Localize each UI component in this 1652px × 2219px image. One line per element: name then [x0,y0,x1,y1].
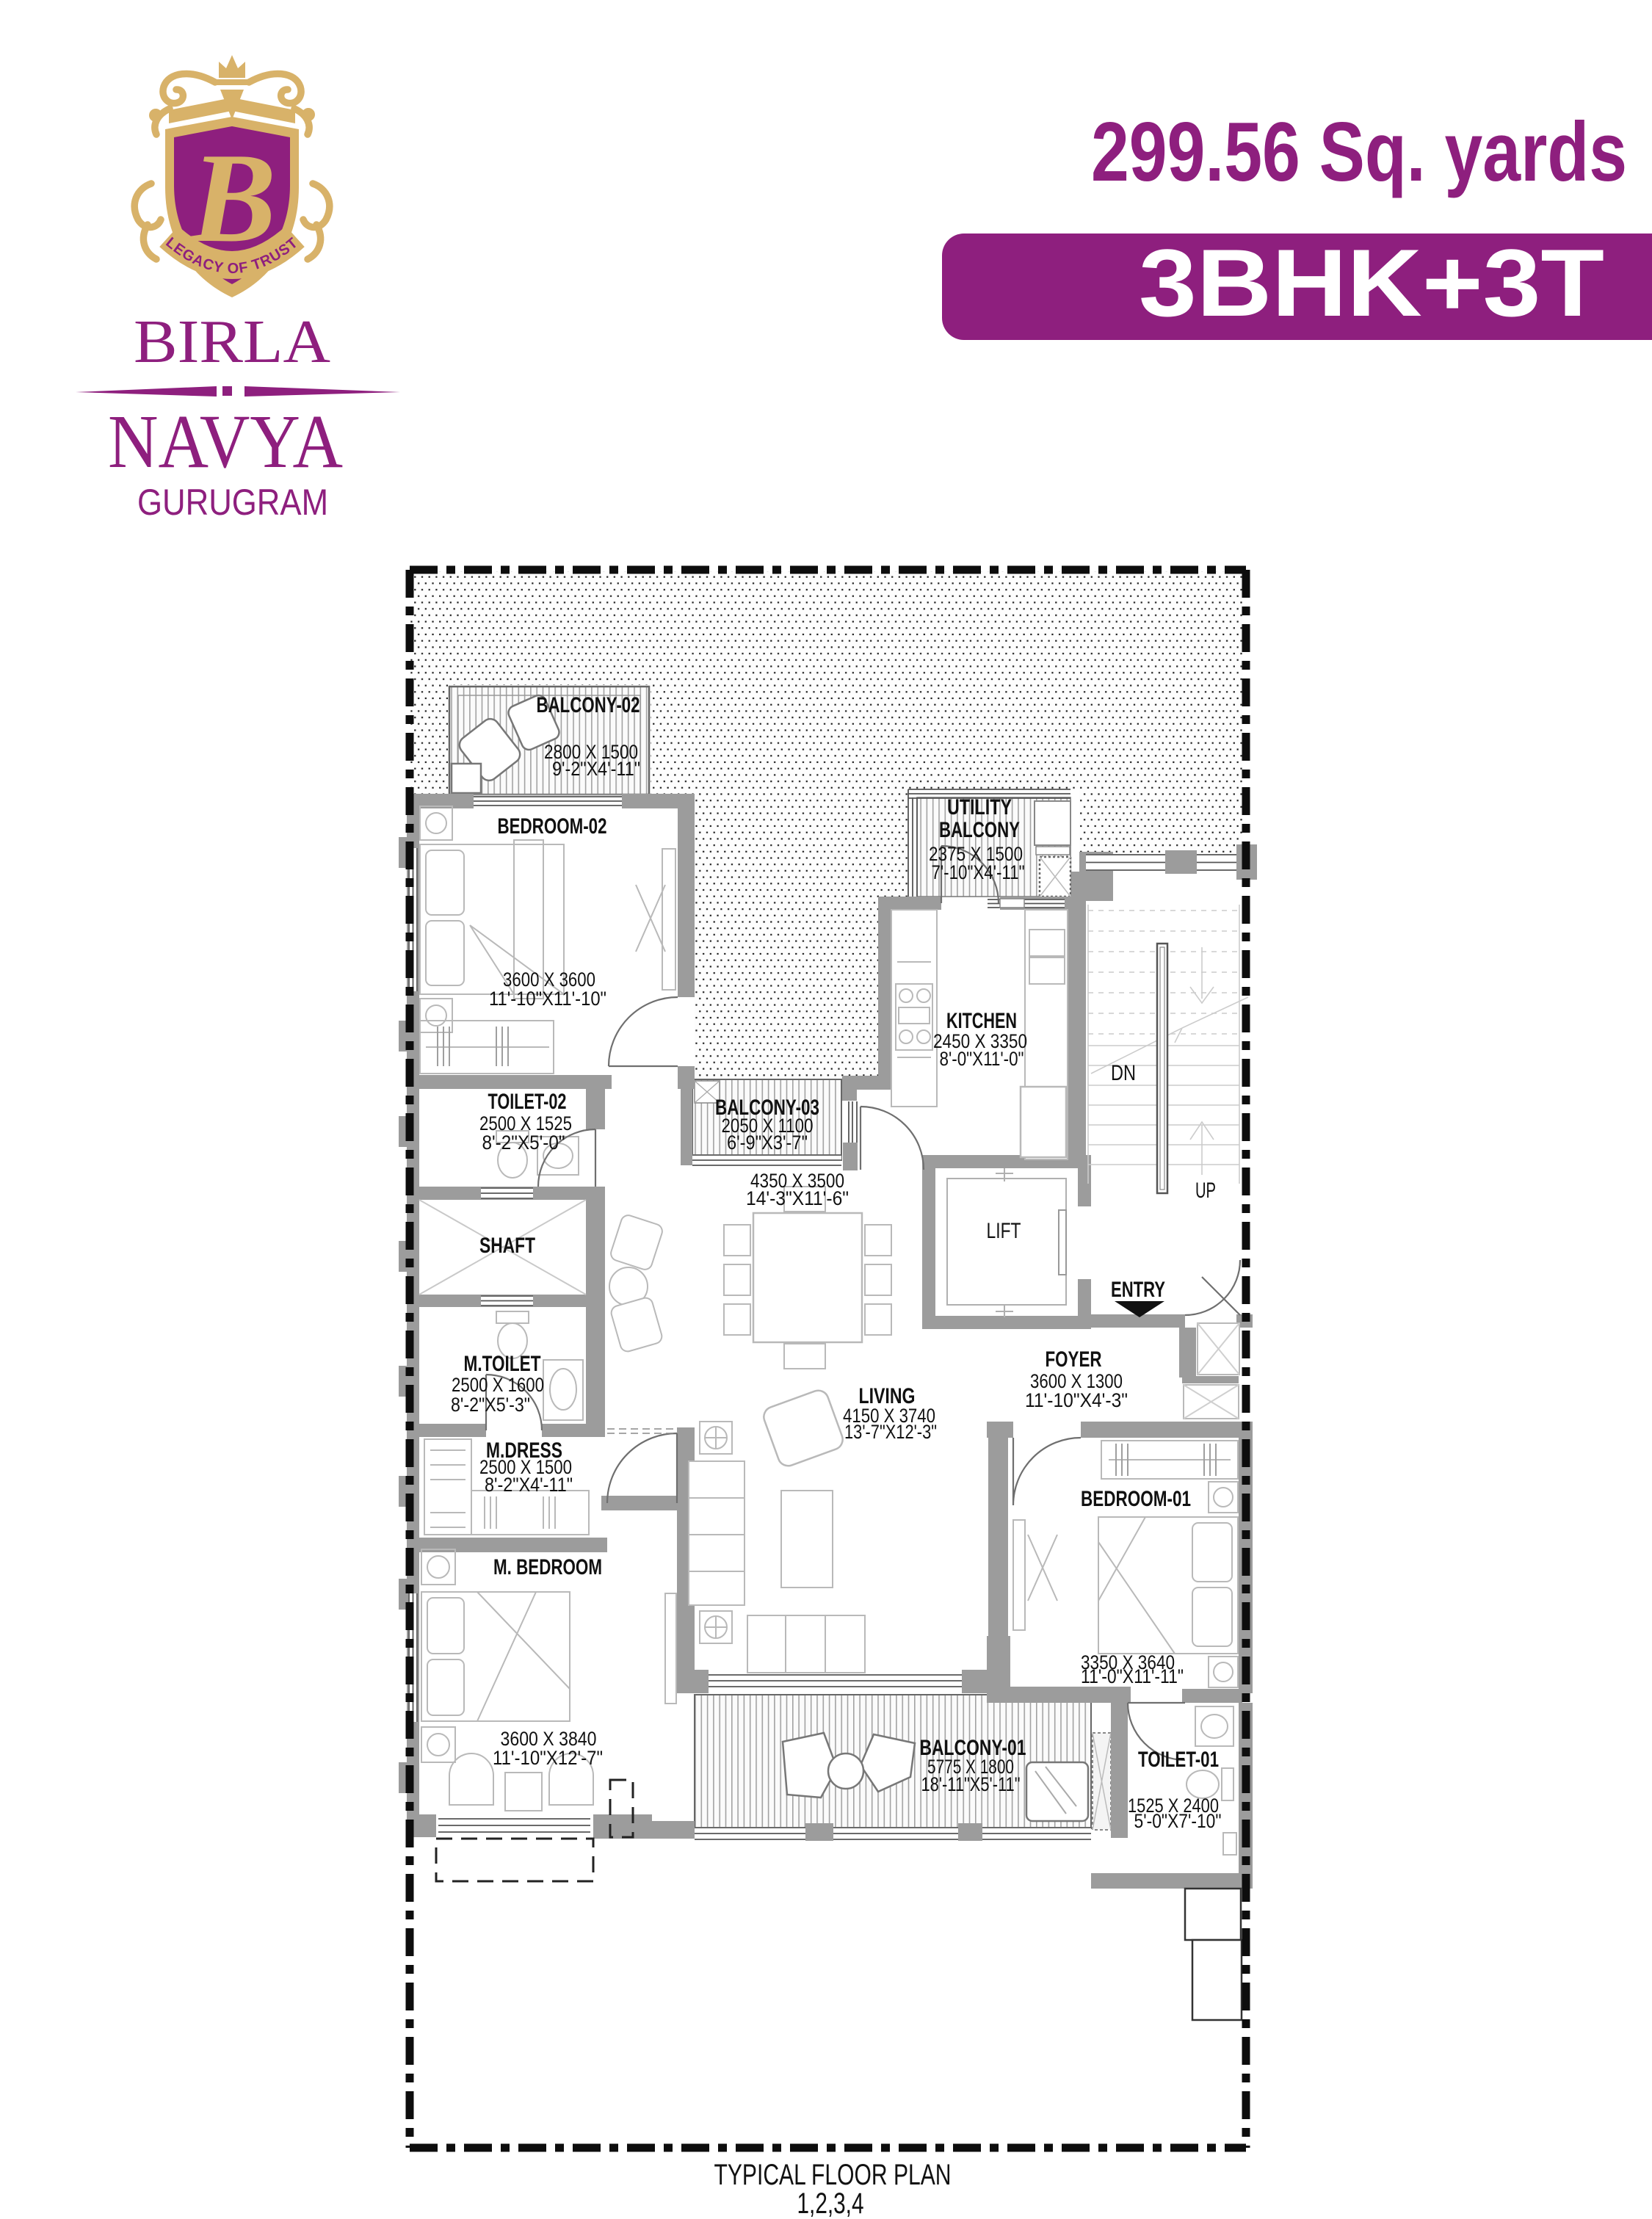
svg-text:1,2,3,4: 1,2,3,4 [797,2187,864,2219]
svg-text:LIFT: LIFT [987,1219,1021,1243]
svg-text:BEDROOM-01: BEDROOM-01 [1081,1487,1191,1511]
svg-text:7'-10"X4'-11": 7'-10"X4'-11" [932,861,1025,883]
svg-text:11'-10"X11'-10": 11'-10"X11'-10" [489,988,606,1010]
svg-text:BIRLA: BIRLA [134,308,330,376]
svg-text:M.TOILET: M.TOILET [464,1352,541,1376]
svg-text:11'-10"X4'-3": 11'-10"X4'-3" [1025,1389,1128,1411]
svg-text:6'-9"X3'-7": 6'-9"X3'-7" [727,1132,808,1154]
svg-text:DN: DN [1111,1061,1136,1085]
svg-text:299.56 Sq. yards: 299.56 Sq. yards [1091,106,1627,199]
svg-text:8'-2"X5'-0": 8'-2"X5'-0" [482,1132,565,1154]
svg-text:11'-0"X11'-11": 11'-0"X11'-11" [1081,1665,1184,1687]
svg-text:8'-2"X5'-3": 8'-2"X5'-3" [451,1394,530,1416]
svg-text:GURUGRAM: GURUGRAM [137,482,328,523]
svg-text:2500 X 1600: 2500 X 1600 [452,1374,544,1396]
svg-text:9'-2"X4'-11": 9'-2"X4'-11" [552,758,640,780]
svg-text:ENTRY: ENTRY [1111,1278,1165,1302]
svg-text:8'-2"X4'-11": 8'-2"X4'-11" [485,1474,573,1496]
svg-text:5'-0"X7'-10": 5'-0"X7'-10" [1134,1810,1222,1832]
svg-text:M. BEDROOM: M. BEDROOM [493,1555,602,1579]
svg-text:3BHK+3T: 3BHK+3T [1139,229,1604,336]
svg-text:TYPICAL FLOOR PLAN: TYPICAL FLOOR PLAN [714,2159,952,2191]
svg-text:14'-3"X11'-6": 14'-3"X11'-6" [746,1187,849,1209]
svg-text:11'-10"X12'-7": 11'-10"X12'-7" [493,1747,603,1769]
svg-text:13'-7"X12'-3": 13'-7"X12'-3" [844,1421,937,1443]
svg-text:BEDROOM-02: BEDROOM-02 [498,814,607,839]
svg-text:TOILET-01: TOILET-01 [1138,1748,1219,1772]
svg-text:UP: UP [1195,1179,1216,1203]
svg-text:SHAFT: SHAFT [479,1234,535,1258]
svg-text:8'-0"X11'-0": 8'-0"X11'-0" [940,1048,1024,1070]
svg-text:BALCONY-02: BALCONY-02 [537,693,640,717]
svg-text:NAVYA: NAVYA [108,399,343,484]
svg-text:18'-11"X5'-11": 18'-11"X5'-11" [921,1773,1021,1795]
svg-text:FOYER: FOYER [1046,1347,1102,1372]
svg-text:BALCONY: BALCONY [939,818,1020,842]
svg-text:UTILITY: UTILITY [947,795,1012,819]
svg-text:TOILET-02: TOILET-02 [488,1090,567,1114]
